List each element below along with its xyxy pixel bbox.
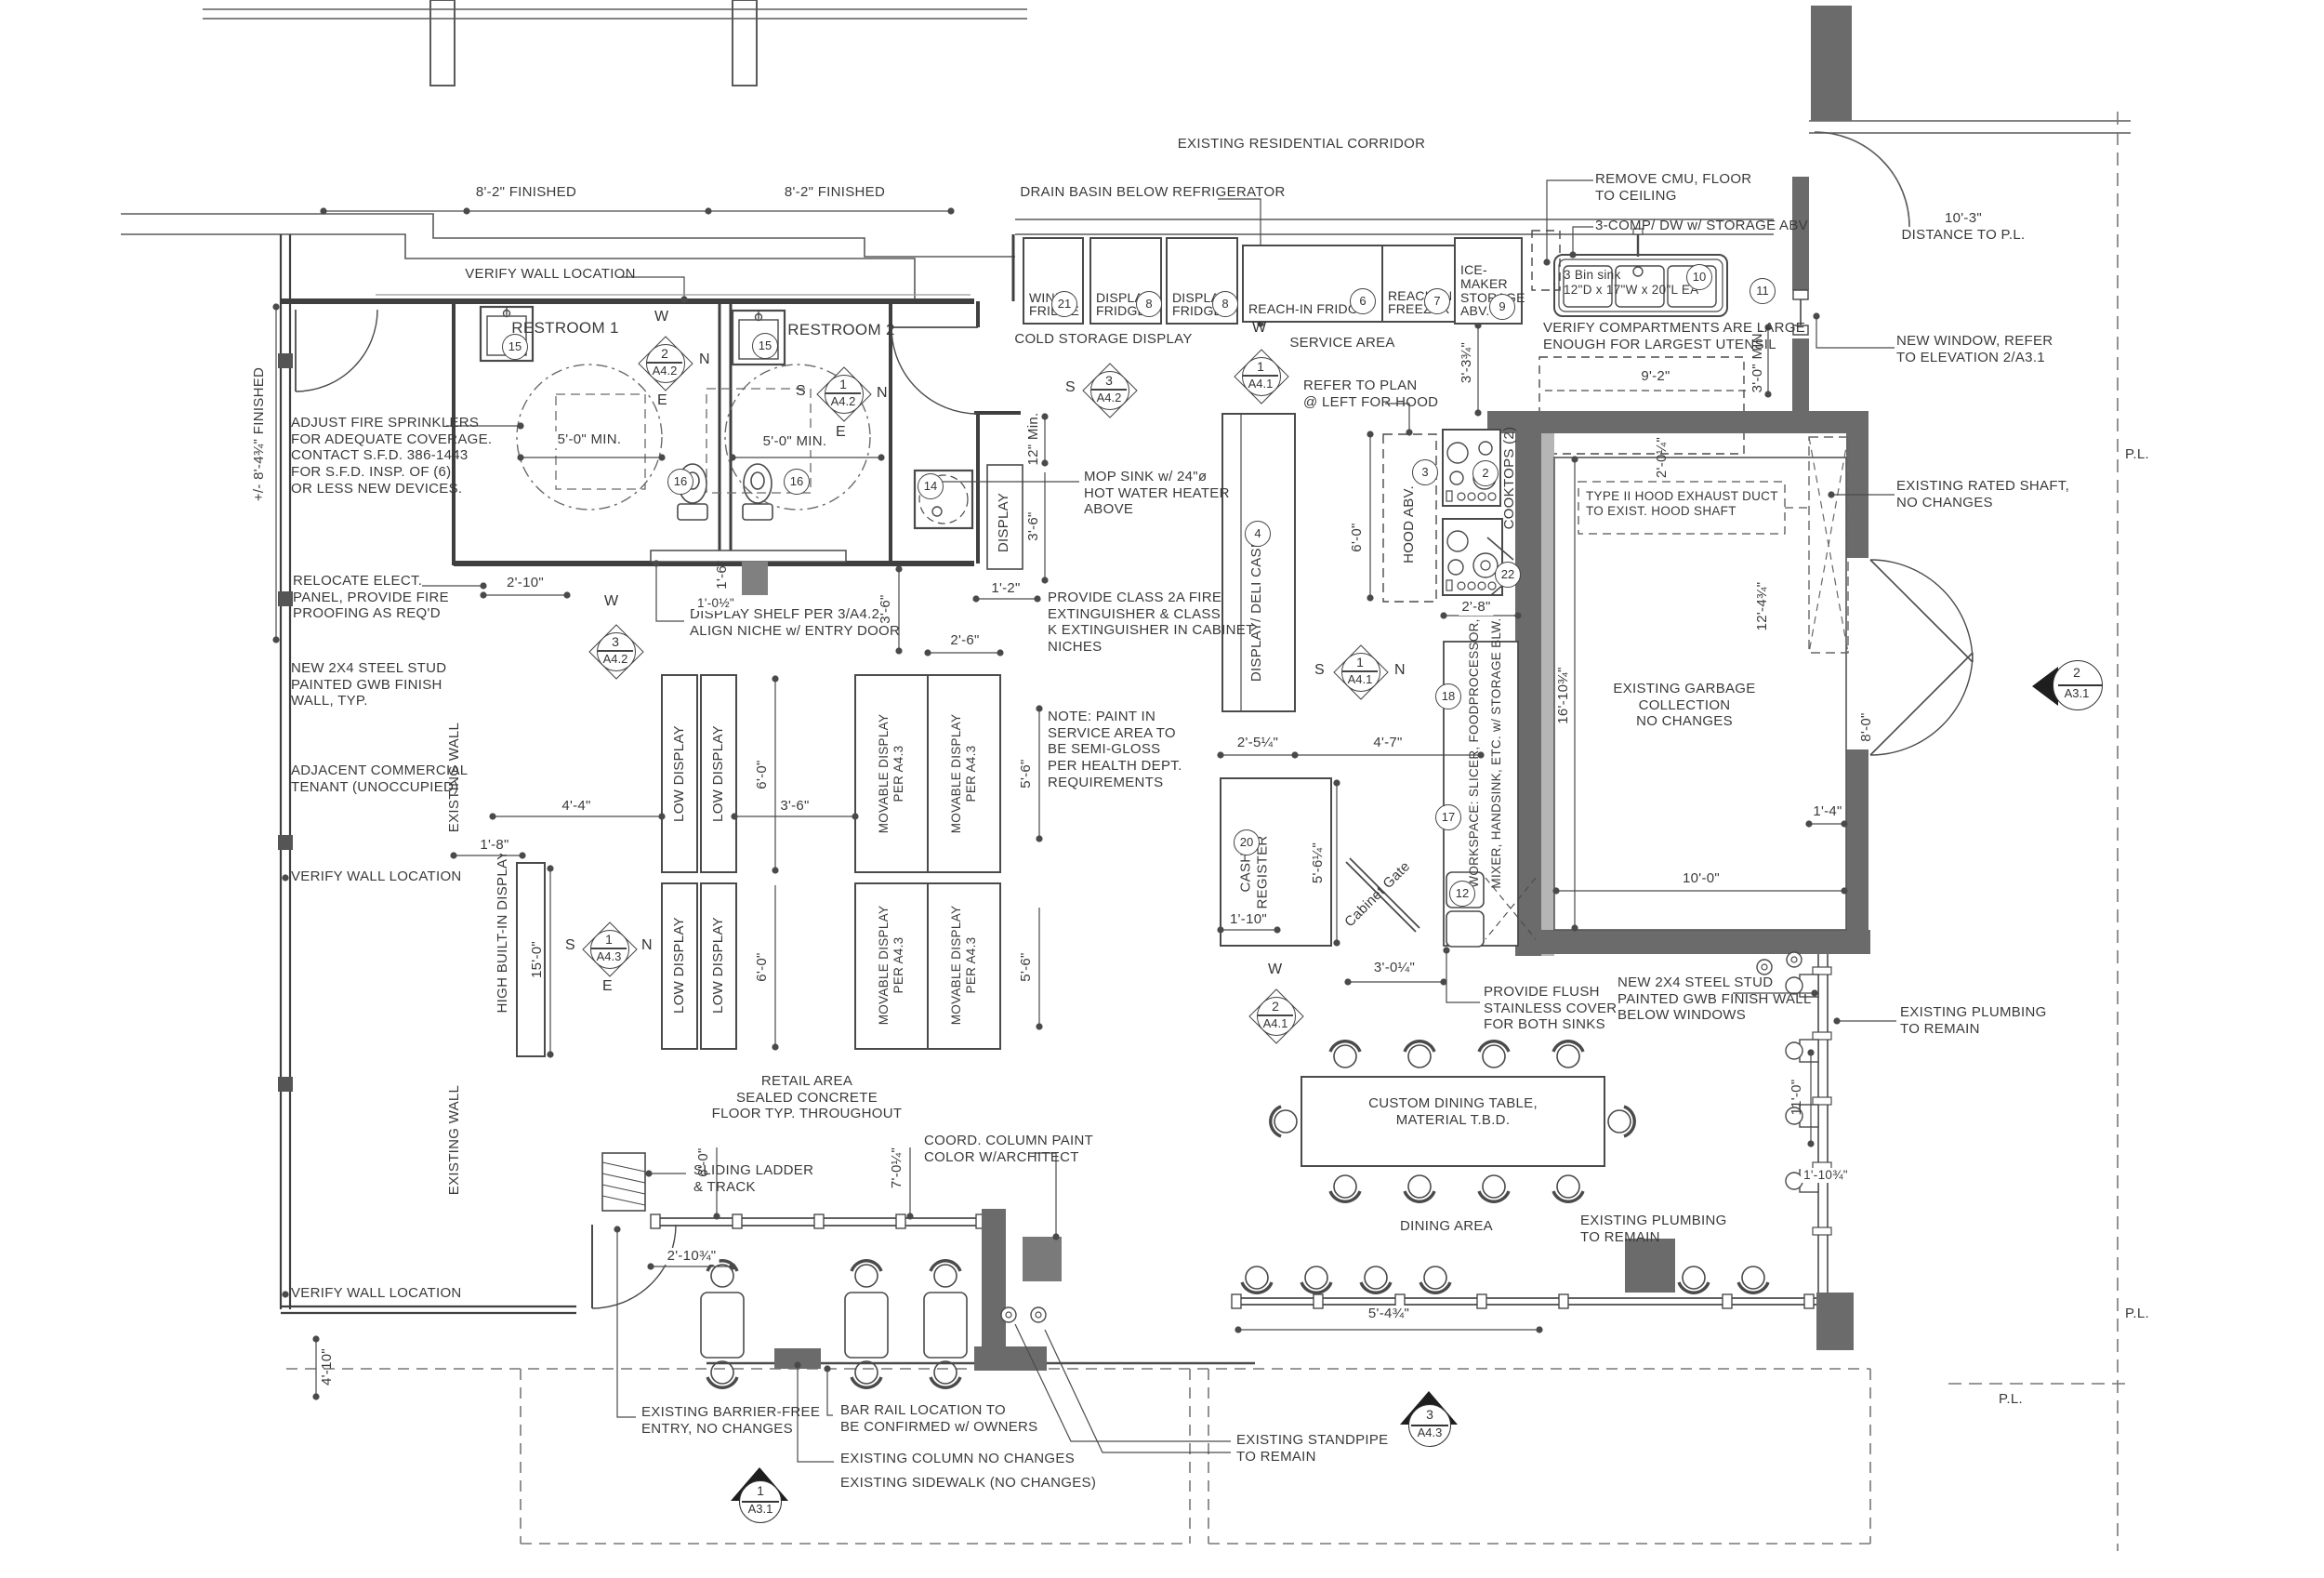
note-new-window: NEW WINDOW, REFER TO ELEVATION 2/A3.1 (1896, 333, 2053, 365)
note-remove-cmu: REMOVE CMU, FLOOR TO CEILING (1595, 171, 1751, 204)
circle-15b: 15 (752, 333, 778, 359)
note-existing-wall-a: EXISTING WALL (446, 723, 463, 832)
label-movable-2: MOVABLE DISPLAY PER A4.3 (949, 714, 979, 834)
label-pl-c: P.L. (1999, 1391, 2023, 1408)
note-verify-wall-left: VERIFY WALL LOCATION (291, 869, 462, 885)
note-refer-hood: REFER TO PLAN @ LEFT FOR HOOD (1303, 378, 1438, 410)
dim-15-0: 15'-0" (529, 941, 546, 978)
circle-16b: 16 (784, 469, 810, 495)
dim-3-0q: 3'-0¼" (1371, 960, 1418, 976)
dim-6-0-hood: 6'-0" (1349, 523, 1366, 551)
dim-12-4: 12'-4¾" (1754, 582, 1771, 631)
circle-4: 4 (1245, 521, 1271, 547)
floor-plan-sheet: WINE FRIDGE DISPLAY FRIDGE DISPLAY FRIDG… (0, 0, 2324, 1578)
label-cooktops: COOKTOPS (2) (1501, 427, 1518, 530)
circle-6: 6 (1350, 288, 1376, 314)
dim-4-10: 4'-10" (319, 1348, 336, 1386)
circle-21: 21 (1051, 291, 1077, 317)
dim-3-0-min: 3'-0" MIN. (1750, 329, 1766, 393)
label-adjacent-tenant: ADJACENT COMMERCIAL TENANT (UNOCCUPIED) (291, 762, 468, 795)
dim-1-10q: 1'-10¾" (1801, 1168, 1851, 1183)
dim-2-10q: 2'-10¾" (665, 1248, 720, 1265)
circle-8a: 8 (1136, 291, 1162, 317)
dim-1-8: 1'-8" (477, 837, 511, 854)
dim-12-min: 12" Min. (1025, 413, 1042, 466)
label-low-display-1: LOW DISPLAY (671, 725, 688, 822)
marker-1-a41-mid: 1A4.1 (1333, 644, 1387, 698)
label-garbage: EXISTING GARBAGE COLLECTION NO CHANGES (1613, 681, 1755, 730)
label-restroom2: RESTROOM 2 (787, 321, 894, 339)
column-restroom (742, 562, 768, 595)
note-verify-wall-top: VERIFY WALL LOCATION (465, 266, 636, 283)
circle-22: 22 (1495, 562, 1521, 588)
label-movable-1: MOVABLE DISPLAY PER A4.3 (877, 714, 906, 834)
dim-6-0-b: 6'-0" (754, 952, 771, 981)
compass-s: S (1314, 662, 1325, 679)
dim-8-4-finished: +/- 8'-4¾" FINISHED (251, 367, 268, 501)
note-flush-cover: PROVIDE FLUSH STAINLESS COVER FOR BOTH S… (1484, 984, 1617, 1033)
label-low-display-4: LOW DISPLAY (710, 917, 727, 1014)
circle-11: 11 (1750, 278, 1776, 304)
reach-in-freezer: REACH-IN FREEZER (1381, 245, 1458, 323)
note-relocate-panel: RELOCATE ELECT. PANEL, PROVIDE FIRE PROO… (293, 573, 449, 622)
label-dining-area: DINING AREA (1400, 1218, 1493, 1235)
dim-2-6: 2'-6" (947, 632, 982, 649)
label-workspace-1: WORKSPACE: SLICER, FOODPROCESSOR, (1467, 618, 1482, 887)
label-cold-storage: COLD STORAGE DISPLAY (1014, 331, 1192, 348)
note-stud-below-windows: NEW 2X4 STEEL STUD PAINTED GWB FINISH WA… (1618, 975, 1812, 1024)
dim-5-6-a: 5'-6" (1018, 759, 1035, 788)
circle-7: 7 (1424, 288, 1450, 314)
marker-2-a31: 2A3.1 (2032, 660, 2106, 712)
circle-16a: 16 (667, 469, 693, 495)
note-existing-sidewalk: EXISTING SIDEWALK (NO CHANGES) (840, 1475, 1096, 1492)
label-display-niche: DISPLAY (996, 493, 1012, 552)
dim-1-6: 1'-6" (714, 560, 731, 589)
dim-2-10: 2'-10" (504, 575, 547, 591)
label-pl-b: P.L. (2125, 1306, 2149, 1322)
circle-20: 20 (1234, 829, 1260, 855)
compass-e: E (836, 424, 846, 441)
dim-3-3: 3'-3¾" (1459, 342, 1475, 383)
label-low-display-2: LOW DISPLAY (710, 725, 727, 822)
east-wall-window (1792, 177, 1809, 417)
note-extinguisher: PROVIDE CLASS 2A FIRE EXTINGUISHER & CLA… (1048, 590, 1255, 656)
label-corridor: EXISTING RESIDENTIAL CORRIDOR (1178, 136, 1426, 152)
label-hood-abv: HOOD ABV. (1401, 485, 1418, 564)
dim-1-4: 1'-4" (1810, 803, 1844, 820)
dim-7-0q: 7'-0¼" (889, 1147, 905, 1188)
compass-s: S (565, 937, 575, 954)
dim-8-2-b: 8'-2" FINISHED (782, 184, 888, 201)
label-pl-a: P.L. (2125, 446, 2149, 463)
dim-5-0-b: 5'-0" MIN. (760, 433, 830, 450)
dim-3-6-a: 3'-6" (1025, 511, 1042, 540)
compass-n: N (877, 385, 888, 402)
dim-4-4: 4'-4" (559, 798, 593, 815)
dim-5-0-a: 5'-0" MIN. (555, 431, 625, 448)
dim-2-5: 2'-5¼" (1235, 735, 1281, 751)
dim-1-0h: 1'-0½" (694, 596, 737, 611)
label-restroom1: RESTROOM 1 (511, 319, 618, 338)
compass-w: W (1268, 961, 1282, 978)
wall-top-right (1811, 6, 1852, 121)
compass-s: S (1065, 379, 1076, 396)
note-rated-shaft: EXISTING RATED SHAFT, NO CHANGES (1896, 478, 2069, 511)
circle-9: 9 (1489, 294, 1515, 320)
note-bar-rail: BAR RAIL LOCATION TO BE CONFIRMED w/ OWN… (840, 1402, 1037, 1435)
label-dining-table: CUSTOM DINING TABLE, MATERIAL T.B.D. (1368, 1095, 1538, 1128)
circle-10: 10 (1686, 264, 1712, 290)
compass-w: W (1252, 320, 1266, 337)
circle-17: 17 (1435, 804, 1461, 830)
note-barrier-free: EXISTING BARRIER-FREE ENTRY, NO CHANGES (641, 1404, 820, 1437)
dim-10-0: 10'-0" (1680, 870, 1723, 887)
dim-2-0q: 2'-0¼" (1654, 437, 1670, 478)
note-coord-column: COORD. COLUMN PAINT COLOR W/ARCHITECT (924, 1133, 1093, 1165)
note-drain-basin: DRAIN BASIN BELOW REFRIGERATOR (1020, 184, 1285, 201)
marker-3-a43: 3A4.3 (1399, 1391, 1460, 1447)
circle-18: 18 (1435, 683, 1461, 709)
marker-2-a42: 2A4.2 (638, 336, 692, 390)
note-standpipe: EXISTING STANDPIPE TO REMAIN (1236, 1432, 1389, 1465)
note-fire-sprinklers: ADJUST FIRE SPRINKLERS FOR ADEQUATE COVE… (291, 415, 492, 497)
note-display-shelf: DISPLAY SHELF PER 3/A4.2 ALIGN NICHE w/ … (690, 606, 900, 639)
label-high-display: HIGH BUILT-IN DISPLAY (495, 851, 511, 1014)
compass-e: E (657, 392, 667, 409)
label-workspace-2: MIXER, HANDSINK, ETC. w/ STORAGE BLW. (1489, 617, 1504, 888)
circle-15a: 15 (502, 334, 528, 360)
note-paint: NOTE: PAINT IN SERVICE AREA TO BE SEMI-G… (1048, 709, 1182, 790)
note-plumbing-bottom: EXISTING PLUMBING TO REMAIN (1580, 1213, 1727, 1245)
note-hood-duct: TYPE II HOOD EXHAUST DUCT TO EXIST. HOOD… (1586, 489, 1778, 519)
standpipes (1001, 1307, 1046, 1322)
note-existing-wall-b: EXISTING WALL (446, 1085, 463, 1195)
note-distance-pl: 10'-3" DISTANCE TO P.L. (1902, 210, 2026, 243)
label-movable-3: MOVABLE DISPLAY PER A4.3 (877, 906, 906, 1026)
dim-2-8: 2'-8" (1459, 599, 1493, 616)
compass-w: W (604, 593, 618, 610)
note-new-stud-wall: NEW 2X4 STEEL STUD PAINTED GWB FINISH WA… (291, 660, 446, 709)
marker-1-a42: 1A4.2 (816, 366, 870, 420)
dim-6-0-a: 6'-0" (754, 760, 771, 789)
circle-8b: 8 (1212, 291, 1238, 317)
compass-w: W (654, 309, 668, 325)
dim-9-2: 9'-2" (1638, 368, 1672, 385)
label-low-display-3: LOW DISPLAY (671, 917, 688, 1014)
label-deli-case: DISPLAY/ DELI CASE (1248, 538, 1265, 682)
dim-1-10: 1'-10" (1227, 911, 1270, 928)
marker-1-a43: 1A4.3 (582, 922, 636, 975)
dim-3-6-b: 3'-6" (878, 594, 894, 623)
note-mop-sink: MOP SINK w/ 24"ø HOT WATER HEATER ABOVE (1084, 469, 1230, 518)
circle-2: 2 (1472, 460, 1499, 486)
note-3comp: 3-COMP/ DW w/ STORAGE ABV (1595, 218, 1808, 234)
note-verify-wall-bottom: VERIFY WALL LOCATION (291, 1285, 462, 1302)
note-plumbing-right: EXISTING PLUMBING TO REMAIN (1900, 1004, 2047, 1037)
label-service-area: SERVICE AREA (1289, 335, 1394, 351)
marker-1-a31: 1A3.1 (730, 1467, 791, 1523)
circle-12: 12 (1449, 881, 1475, 907)
compass-e: E (602, 978, 613, 995)
compass-s: S (796, 383, 806, 400)
dim-8-0: 8'-0" (1858, 712, 1875, 741)
dim-5-4q: 5'-4¾" (1366, 1306, 1412, 1322)
dim-16-10: 16'-10¾" (1555, 667, 1572, 723)
dim-5-6-b: 5'-6" (1018, 952, 1035, 981)
compass-n: N (699, 351, 710, 368)
dim-1-2: 1'-2" (988, 580, 1023, 597)
circle-14: 14 (918, 473, 944, 499)
note-existing-column: EXISTING COLUMN NO CHANGES (840, 1451, 1075, 1467)
compass-n: N (641, 937, 653, 954)
dim-8-2-a: 8'-2" FINISHED (473, 184, 579, 201)
marker-3-a42-west: 3A4.2 (588, 624, 642, 678)
dim-5-6q: 5'-6¼" (1310, 842, 1327, 883)
dim-4-7: 4'-7" (1370, 735, 1405, 751)
circle-3: 3 (1412, 459, 1438, 485)
marker-3-a42-cold: 3A4.2 (1082, 363, 1136, 417)
dim-11-0: 11'-0" (1789, 1080, 1805, 1116)
label-movable-4: MOVABLE DISPLAY PER A4.3 (949, 906, 979, 1026)
dim-6-0-c: 6'-0" (695, 1147, 712, 1176)
label-retail-area: RETAIL AREA SEALED CONCRETE FLOOR TYP. T… (712, 1073, 903, 1122)
dim-3-6-c: 3'-6" (777, 798, 812, 815)
marker-1-a41-top: 1A4.1 (1234, 349, 1287, 403)
marker-2-a41: 2A4.1 (1248, 988, 1302, 1042)
compass-n: N (1394, 662, 1406, 679)
